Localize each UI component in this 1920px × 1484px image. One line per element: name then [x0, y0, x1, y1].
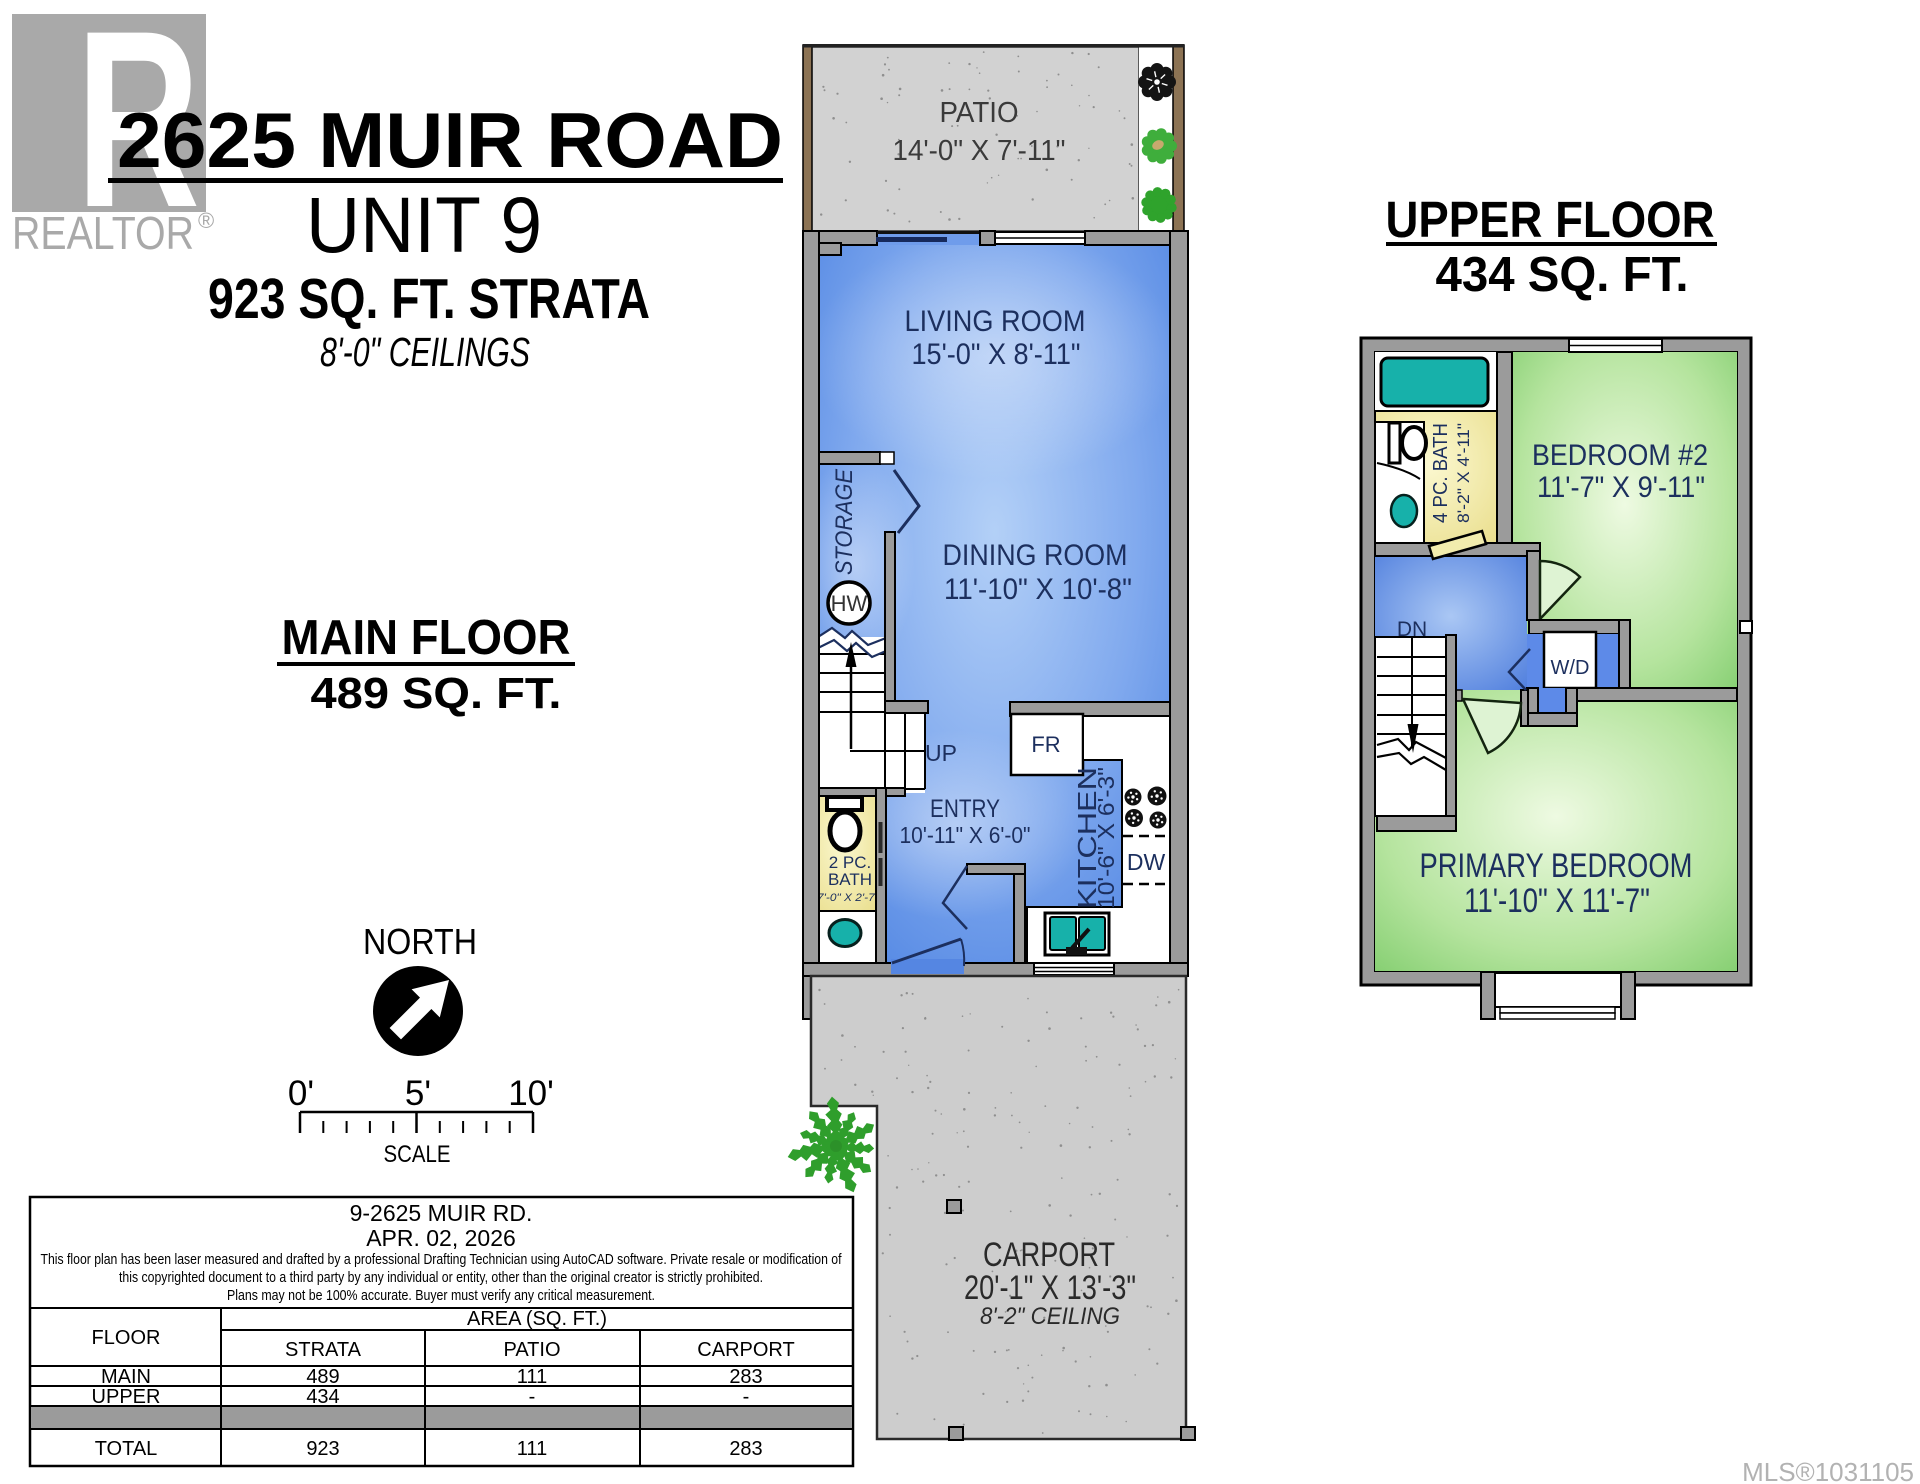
- svg-text:9-2625 MUIR RD.: 9-2625 MUIR RD.: [350, 1200, 533, 1226]
- svg-text:NORTH: NORTH: [363, 921, 477, 962]
- svg-text:10': 10': [508, 1074, 554, 1113]
- svg-text:CARPORT: CARPORT: [697, 1339, 794, 1361]
- svg-text:W/D: W/D: [1551, 657, 1590, 679]
- svg-text:434 SQ. FT.: 434 SQ. FT.: [1436, 248, 1689, 302]
- svg-text:8'-2" X 4'-11": 8'-2" X 4'-11": [1454, 423, 1473, 523]
- svg-text:FLOOR: FLOOR: [92, 1327, 161, 1349]
- svg-text:MAIN FLOOR: MAIN FLOOR: [282, 611, 571, 665]
- svg-text:7'-0" X 2'-7": 7'-0" X 2'-7": [817, 892, 880, 904]
- svg-text:DINING ROOM: DINING ROOM: [943, 539, 1128, 572]
- svg-text:APR. 02, 2026: APR. 02, 2026: [366, 1225, 516, 1251]
- svg-text:UNIT 9: UNIT 9: [306, 180, 542, 269]
- svg-text:this copyrighted document to a: this copyrighted document to a third par…: [119, 1270, 763, 1286]
- svg-text:10'-11" X 6'-0": 10'-11" X 6'-0": [900, 822, 1031, 848]
- svg-text:5': 5': [405, 1074, 431, 1113]
- svg-text:MAIN: MAIN: [101, 1366, 151, 1388]
- svg-text:10'-6" X 6'-3": 10'-6" X 6'-3": [1093, 767, 1119, 909]
- svg-text:15'-0" X 8'-11": 15'-0" X 8'-11": [912, 338, 1081, 371]
- svg-text:DN: DN: [1397, 618, 1427, 641]
- svg-text:-: -: [529, 1386, 536, 1408]
- svg-text:11'-10" X 11'-7": 11'-10" X 11'-7": [1464, 882, 1650, 920]
- svg-text:AREA (SQ. FT.): AREA (SQ. FT.): [467, 1308, 607, 1330]
- svg-text:923: 923: [306, 1438, 339, 1460]
- svg-text:489: 489: [306, 1366, 339, 1388]
- svg-text:UP: UP: [925, 740, 957, 766]
- svg-text:11'-7" X 9'-11": 11'-7" X 9'-11": [1537, 471, 1705, 504]
- svg-text:FR: FR: [1031, 732, 1060, 757]
- svg-text:HW: HW: [831, 591, 868, 616]
- svg-text:20'-1" X 13'-3": 20'-1" X 13'-3": [964, 1269, 1136, 1307]
- svg-text:283: 283: [729, 1366, 762, 1388]
- svg-text:434: 434: [306, 1386, 339, 1408]
- svg-text:283: 283: [729, 1438, 762, 1460]
- svg-text:BEDROOM #2: BEDROOM #2: [1532, 439, 1708, 472]
- svg-text:REALTOR: REALTOR: [12, 207, 194, 259]
- svg-text:PATIO: PATIO: [503, 1339, 560, 1361]
- svg-text:LIVING ROOM: LIVING ROOM: [905, 305, 1086, 338]
- svg-text:2625 MUIR ROAD: 2625 MUIR ROAD: [117, 96, 783, 184]
- svg-text:STORAGE: STORAGE: [831, 468, 858, 575]
- svg-text:-: -: [743, 1386, 750, 1408]
- svg-text:DW: DW: [1127, 849, 1166, 875]
- svg-text:11'-10" X 10'-8": 11'-10" X 10'-8": [944, 573, 1132, 606]
- svg-text:Plans may not be 100% accurate: Plans may not be 100% accurate. Buyer mu…: [227, 1288, 655, 1304]
- svg-text:BATH: BATH: [828, 870, 872, 889]
- svg-text:8'-2" CEILING: 8'-2" CEILING: [980, 1303, 1120, 1330]
- svg-text:111: 111: [517, 1366, 547, 1388]
- svg-text:4 PC. BATH: 4 PC. BATH: [1430, 423, 1452, 523]
- svg-text:111: 111: [517, 1438, 547, 1460]
- svg-text:0': 0': [288, 1074, 314, 1113]
- svg-text:®: ®: [198, 208, 214, 233]
- svg-text:MLS®1031105: MLS®1031105: [1742, 1457, 1914, 1484]
- svg-text:This floor plan has been laser: This floor plan has been laser measured …: [41, 1252, 843, 1268]
- svg-text:ENTRY: ENTRY: [930, 795, 1000, 823]
- svg-text:STRATA: STRATA: [285, 1339, 362, 1361]
- svg-text:UPPER FLOOR: UPPER FLOOR: [1386, 191, 1715, 248]
- svg-text:SCALE: SCALE: [384, 1141, 451, 1168]
- svg-text:UPPER: UPPER: [92, 1386, 161, 1408]
- svg-text:TOTAL: TOTAL: [95, 1438, 158, 1460]
- svg-text:PATIO: PATIO: [940, 97, 1019, 129]
- svg-text:8'-0" CEILINGS: 8'-0" CEILINGS: [320, 329, 530, 375]
- svg-text:14'-0" X 7'-11": 14'-0" X 7'-11": [893, 135, 1066, 167]
- svg-text:489 SQ. FT.: 489 SQ. FT.: [311, 669, 562, 718]
- svg-text:PRIMARY BEDROOM: PRIMARY BEDROOM: [1420, 847, 1693, 885]
- svg-text:923 SQ. FT. STRATA: 923 SQ. FT. STRATA: [208, 267, 650, 331]
